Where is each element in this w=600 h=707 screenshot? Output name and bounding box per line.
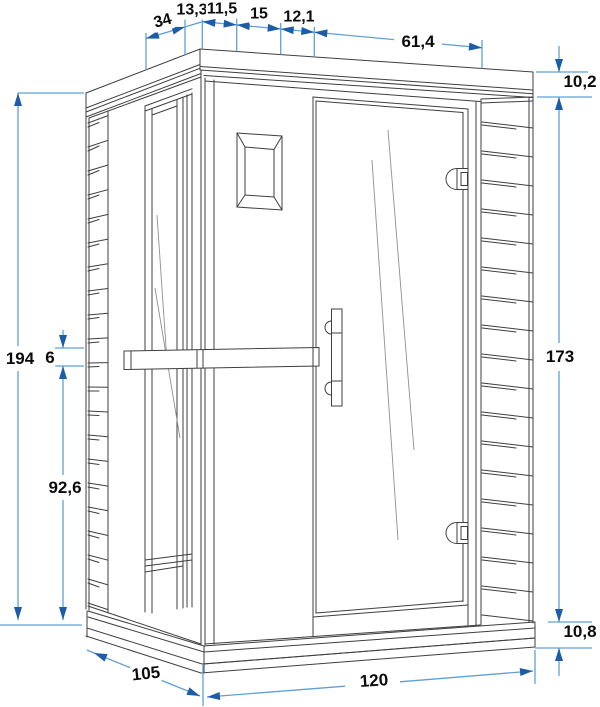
door-hinge-top <box>446 169 468 190</box>
dim-label-10-8: 10,8 <box>562 623 597 641</box>
dim-label-11-5: 11,5 <box>206 2 238 19</box>
dim-label-92-6: 92,6 <box>47 479 82 497</box>
dim-label-120: 120 <box>358 671 390 691</box>
right-wall-slats <box>482 122 533 621</box>
dim-label-13-3: 13,3 <box>175 3 208 20</box>
dim-label-173: 173 <box>545 348 575 366</box>
door-handle <box>325 309 342 406</box>
vent-window <box>237 133 282 210</box>
dim-label-194: 194 <box>5 350 35 368</box>
dim-label-6: 6 <box>44 349 55 367</box>
side-glass-reflections <box>155 215 180 438</box>
dim-label-61-4: 61,4 <box>400 33 435 51</box>
dim-label-105: 105 <box>130 664 162 685</box>
line-art <box>0 0 600 707</box>
door-glass-reflections <box>372 130 414 540</box>
dim-label-12-1: 12,1 <box>282 10 315 27</box>
dim-label-15: 15 <box>249 7 269 24</box>
door-hinge-bottom <box>446 523 468 544</box>
left-wall-slats <box>88 116 108 610</box>
dim-label-10-2: 10,2 <box>562 73 597 91</box>
towel-bar <box>124 348 319 370</box>
sauna-dimension-drawing: 34 13,3 11,5 15 12,1 61,4 10,2 173 10,8 … <box>0 0 600 707</box>
roof <box>86 49 533 120</box>
